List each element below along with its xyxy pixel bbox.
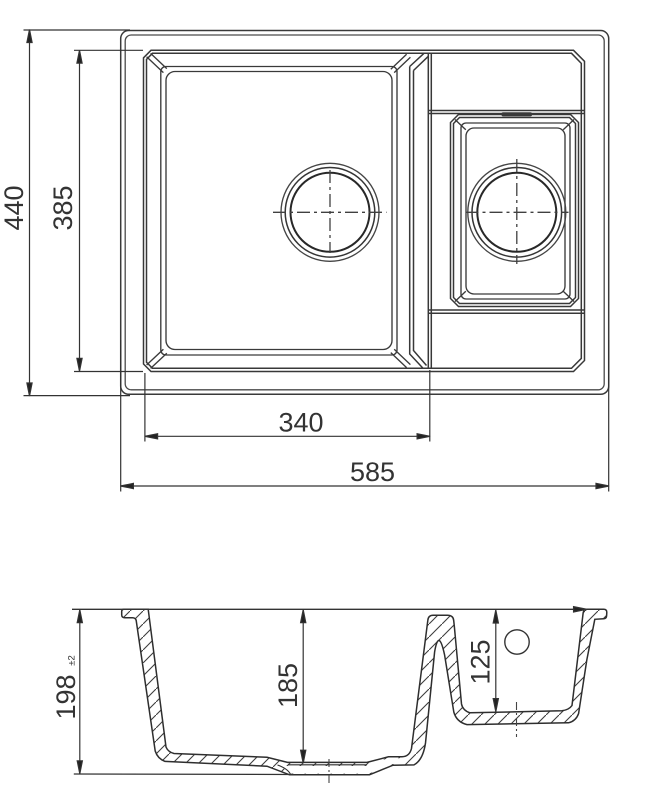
svg-text:125: 125 xyxy=(466,639,496,684)
svg-text:185: 185 xyxy=(273,663,303,708)
svg-text:±2: ±2 xyxy=(67,655,78,666)
svg-text:340: 340 xyxy=(278,408,323,438)
svg-text:385: 385 xyxy=(48,185,78,230)
svg-text:585: 585 xyxy=(350,457,395,487)
svg-text:198: 198 xyxy=(51,674,81,719)
svg-text:440: 440 xyxy=(0,185,29,230)
